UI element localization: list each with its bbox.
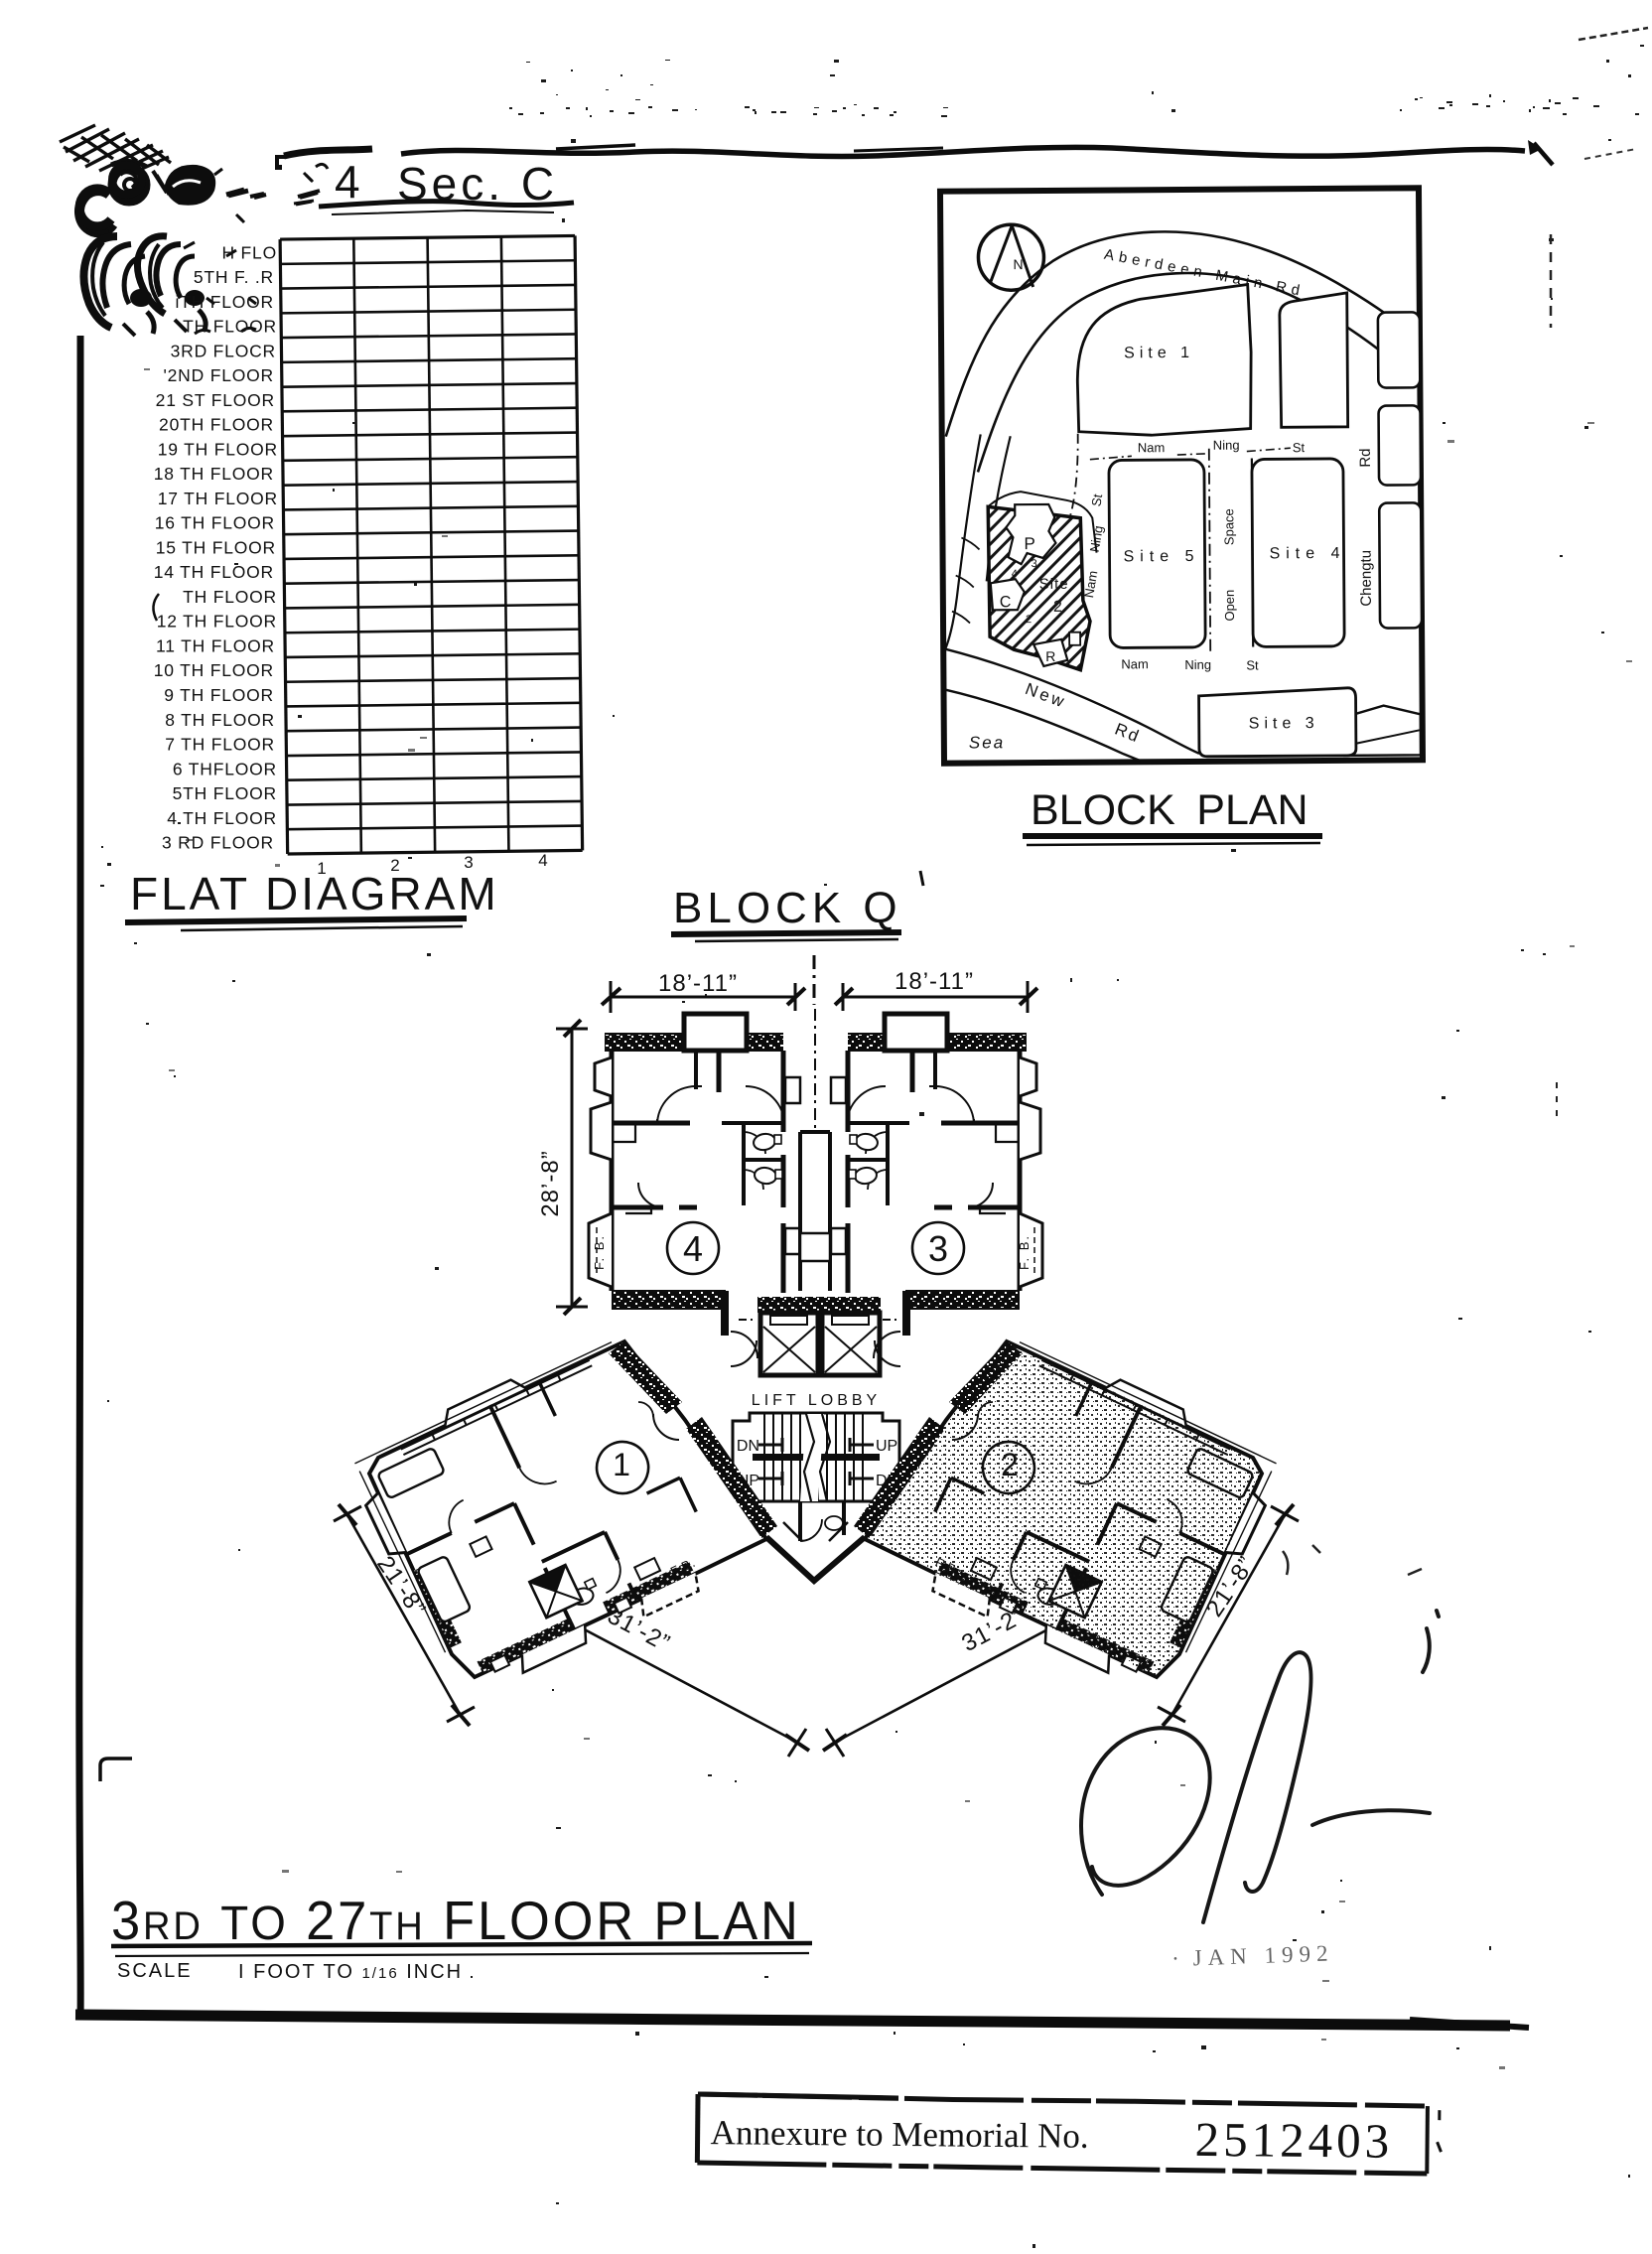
svg-text:5TH FLOOR: 5TH FLOOR bbox=[173, 783, 277, 803]
svg-text:1: 1 bbox=[613, 1447, 630, 1482]
svg-text:2: 2 bbox=[1001, 1447, 1019, 1482]
svg-text:Ning: Ning bbox=[1184, 657, 1211, 672]
svg-text:FLAT DIAGRAM: FLAT DIAGRAM bbox=[130, 868, 499, 919]
svg-text:21 ST FLOOR: 21 ST FLOOR bbox=[156, 390, 275, 410]
svg-text:12 TH FLOOR: 12 TH FLOOR bbox=[157, 612, 277, 632]
svg-text:R: R bbox=[1045, 648, 1055, 664]
svg-text:Annexure to Memorial No.: Annexure to Memorial No. bbox=[710, 2113, 1088, 2156]
svg-text:20TH FLOOR: 20TH FLOOR bbox=[159, 415, 274, 435]
svg-text:Site 5: Site 5 bbox=[1124, 548, 1200, 566]
svg-text:11 TH FLOOR: 11 TH FLOOR bbox=[156, 636, 275, 656]
svg-text:28’-8”: 28’-8” bbox=[537, 1150, 564, 1216]
svg-text:N: N bbox=[1013, 256, 1023, 272]
svg-text:3: 3 bbox=[928, 1228, 948, 1269]
svg-text:2512403: 2512403 bbox=[1194, 2112, 1393, 2169]
svg-text:3: 3 bbox=[1032, 558, 1037, 570]
svg-text:4: 4 bbox=[683, 1228, 703, 1269]
svg-text:7 TH FLOOR: 7 TH FLOOR bbox=[165, 735, 275, 755]
svg-text:6 THFLOOR: 6 THFLOOR bbox=[173, 759, 277, 778]
svg-text:2: 2 bbox=[1026, 614, 1032, 626]
svg-text:BLOCK PLAN: BLOCK PLAN bbox=[1031, 786, 1308, 834]
svg-text:UP: UP bbox=[876, 1438, 897, 1455]
svg-text:iTH FLOOR: iTH FLOOR bbox=[175, 292, 274, 312]
svg-text:P: P bbox=[1024, 534, 1034, 553]
svg-text:16 TH FLOOR: 16 TH FLOOR bbox=[155, 513, 275, 533]
svg-text:4 TH FLOOR: 4 TH FLOOR bbox=[167, 808, 277, 828]
svg-text:Nam: Nam bbox=[1138, 440, 1166, 455]
svg-text:Nam: Nam bbox=[1121, 656, 1149, 671]
svg-text:15 TH FLOOR: 15 TH FLOOR bbox=[156, 537, 276, 557]
svg-text:F. B.: F. B. bbox=[592, 1234, 607, 1270]
svg-text:8 TH FLOOR: 8 TH FLOOR bbox=[165, 710, 275, 730]
svg-text:SCALE: SCALE bbox=[117, 1960, 193, 1982]
svg-text:St: St bbox=[1293, 440, 1306, 455]
svg-text:4: 4 bbox=[1012, 568, 1018, 580]
svg-text:TH FLOOR: TH FLOOR bbox=[183, 587, 277, 607]
svg-text:Rd: Rd bbox=[1357, 448, 1374, 467]
svg-text:14 TH FLOOR: 14 TH FLOOR bbox=[154, 562, 274, 582]
svg-text:Site 4: Site 4 bbox=[1269, 545, 1345, 563]
svg-text:Site 3: Site 3 bbox=[1249, 715, 1319, 732]
svg-text:5TH F. .R: 5TH F. .R bbox=[194, 267, 274, 287]
svg-text:C: C bbox=[1000, 594, 1012, 611]
svg-text:DN: DN bbox=[737, 1438, 759, 1455]
svg-text:4: 4 bbox=[538, 851, 547, 870]
svg-text:TH FLOOR: TH FLOOR bbox=[183, 317, 277, 337]
svg-text:Space: Space bbox=[1221, 508, 1236, 545]
svg-text:18’-11”: 18’-11” bbox=[895, 968, 974, 995]
svg-text:LIFT LOBBY: LIFT LOBBY bbox=[752, 1392, 881, 1409]
svg-text:I FOOT TO 1/16 INCH: I FOOT TO 1/16 INCH bbox=[238, 1961, 463, 1983]
svg-text:18’-11”: 18’-11” bbox=[658, 970, 738, 997]
svg-text:BLOCK Q: BLOCK Q bbox=[673, 884, 902, 932]
svg-text:H FLO: H FLO bbox=[221, 242, 277, 262]
svg-text:Site: Site bbox=[1039, 576, 1069, 593]
svg-text:2: 2 bbox=[1053, 599, 1062, 616]
svg-text:Ning: Ning bbox=[1213, 438, 1240, 453]
svg-text:4: 4 bbox=[335, 156, 360, 208]
svg-text:Open: Open bbox=[1222, 590, 1237, 622]
svg-text:19 TH FLOOR: 19 TH FLOOR bbox=[158, 439, 278, 459]
svg-text:17 TH FLOOR: 17 TH FLOOR bbox=[158, 489, 278, 508]
svg-text:9 TH FLOOR: 9 TH FLOOR bbox=[164, 685, 274, 705]
svg-text:18 TH FLOOR: 18 TH FLOOR bbox=[154, 464, 274, 484]
svg-text:3RD FLOCR: 3RD FLOCR bbox=[171, 341, 276, 360]
svg-text:3 RD FLOOR: 3 RD FLOOR bbox=[162, 833, 274, 853]
svg-text:'2ND FLOOR: '2ND FLOOR bbox=[164, 365, 275, 385]
svg-text:Chengtu: Chengtu bbox=[1358, 550, 1375, 607]
svg-text:Sea: Sea bbox=[969, 733, 1005, 752]
svg-text:St: St bbox=[1246, 657, 1259, 672]
svg-text:10 TH FLOOR: 10 TH FLOOR bbox=[154, 660, 274, 680]
svg-text:Site 1: Site 1 bbox=[1124, 345, 1194, 361]
svg-text:F. B.: F. B. bbox=[1017, 1234, 1032, 1270]
